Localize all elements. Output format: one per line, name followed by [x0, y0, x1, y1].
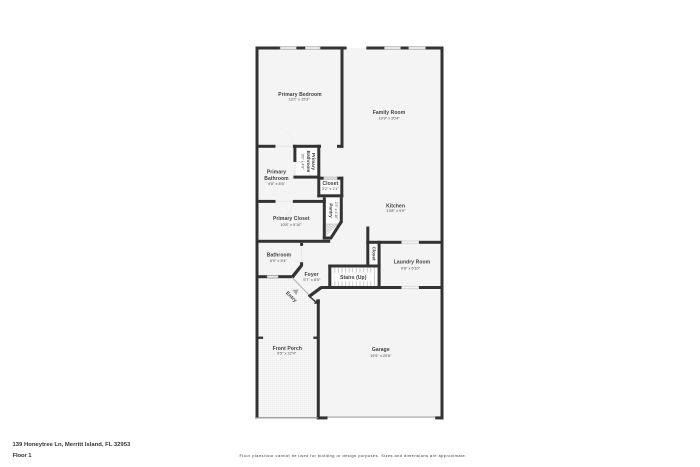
- svg-text:2'3" x 4'10": 2'3" x 4'10": [334, 202, 338, 220]
- svg-text:19'9" x 20'4": 19'9" x 20'4": [379, 116, 401, 121]
- svg-text:Laundry Room: Laundry Room: [394, 259, 431, 265]
- svg-text:139 Honeytree Ln, Merritt Isla: 139 Honeytree Ln, Merritt Island, FL 329…: [13, 442, 131, 448]
- svg-text:Floor plans/tour cannot be use: Floor plans/tour cannot be used for buil…: [240, 453, 467, 458]
- svg-text:9'5" x 22'4": 9'5" x 22'4": [277, 351, 297, 356]
- svg-text:Floor 1: Floor 1: [13, 453, 33, 459]
- svg-text:Primary Closet: Primary Closet: [273, 216, 310, 222]
- svg-text:Closet: Closet: [371, 246, 376, 261]
- svg-text:Pantry: Pantry: [328, 203, 333, 218]
- svg-text:3'2" x 2'1": 3'2" x 2'1": [322, 186, 340, 191]
- svg-text:6'9" x 5'4": 6'9" x 5'4": [270, 258, 288, 263]
- svg-text:9'8" x 8'6": 9'8" x 8'6": [268, 181, 286, 186]
- svg-text:Stairs (Up): Stairs (Up): [340, 275, 367, 281]
- svg-text:13'2" x 15'3": 13'2" x 15'3": [288, 97, 310, 102]
- svg-text:Primary: Primary: [267, 170, 286, 176]
- svg-text:3'0" x 4'9": 3'0" x 4'9": [301, 154, 305, 170]
- svg-text:9'8" x 6'10": 9'8" x 6'10": [401, 266, 421, 271]
- svg-text:13'8" x 9'9": 13'8" x 9'9": [386, 208, 406, 213]
- svg-text:Bathroom: Bathroom: [306, 151, 311, 173]
- svg-text:19'5" x 20'6": 19'5" x 20'6": [370, 353, 392, 358]
- svg-text:5'7" x 8'5": 5'7" x 8'5": [303, 277, 321, 282]
- svg-text:10'8" x 5'10": 10'8" x 5'10": [280, 222, 302, 227]
